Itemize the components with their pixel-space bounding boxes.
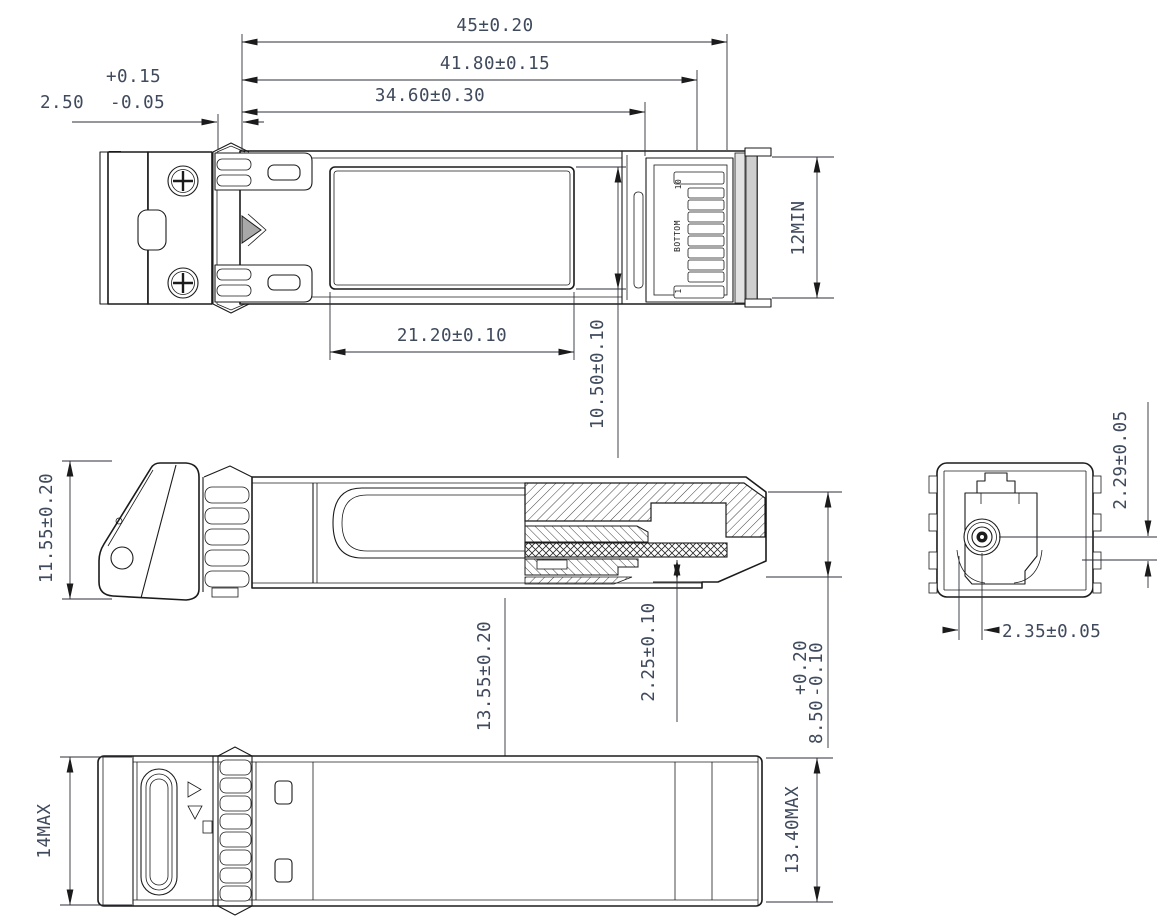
pad <box>688 224 724 234</box>
bail-hole <box>111 547 133 569</box>
latch-slot <box>217 175 251 186</box>
serration-rib <box>205 571 249 587</box>
serration-crown-bottom <box>218 906 252 915</box>
latch-slot <box>217 285 251 296</box>
serration-rib <box>220 886 251 901</box>
dim-text: 2.29±0.05 <box>1111 410 1131 509</box>
dim-text-group: 8.50 +0.20 -0.10 <box>791 640 827 744</box>
small-key-feature <box>203 821 212 833</box>
pad <box>688 272 724 282</box>
rear-tab-top <box>745 148 771 156</box>
serration-rib <box>220 868 251 883</box>
side-rib <box>929 552 937 569</box>
dim-text: 2.25±0.10 <box>639 602 659 701</box>
pcb-section <box>525 543 727 557</box>
housing-cutout <box>268 165 300 180</box>
bottom-body-outline <box>98 756 762 906</box>
serration-rib <box>205 529 249 545</box>
serration-rib <box>205 508 249 524</box>
pad <box>688 200 724 210</box>
dim-text: 21.20±0.10 <box>397 326 507 346</box>
sfp-outline-drawing: 10 BOTTOM 1 45±0.20 41.80±0.15 34.60±0.3… <box>0 0 1162 922</box>
side-rib <box>929 583 937 593</box>
dim-tolerance-plus: +0.15 <box>106 67 161 87</box>
dim-text: 14MAX <box>35 803 55 858</box>
latch-crown-bottom-inner <box>217 304 245 310</box>
side-pocket <box>333 488 525 558</box>
serration-rib <box>220 850 251 865</box>
rear-tab-bottom <box>745 299 771 307</box>
bottom-cutout <box>275 859 292 882</box>
rear-gray-strip <box>746 151 757 304</box>
bottom-view <box>98 747 762 915</box>
dim-text: 8.50 <box>807 700 827 744</box>
dim-latch-band: +0.15 2.50 -0.05 <box>40 67 264 150</box>
dim-text: 2.35±0.05 <box>1002 622 1101 642</box>
serration-rib <box>205 550 249 566</box>
latch-slot <box>217 159 251 170</box>
bail-slot-inner <box>150 779 168 885</box>
dim-text: 13.55±0.20 <box>475 621 495 731</box>
pin-1-label: 1 <box>674 288 683 293</box>
rear-slot <box>634 192 643 288</box>
dim-overall-width-max: 13.40MAX <box>766 758 833 902</box>
serration-rib <box>220 796 251 811</box>
pad <box>688 236 724 246</box>
dim-overall-length: 45±0.20 <box>242 16 727 150</box>
dim-text: 41.80±0.15 <box>440 54 550 74</box>
latch-crown-bottom <box>213 304 249 313</box>
dim-text: 13.40MAX <box>783 786 803 874</box>
serration-rib <box>220 778 251 793</box>
side-rib <box>1093 583 1101 593</box>
bottom-cutout <box>275 781 292 804</box>
dim-tolerance-minus: -0.10 <box>807 642 827 697</box>
fiber-ferrule <box>964 519 1000 555</box>
front-edge-strip <box>100 152 108 304</box>
side-rib <box>1093 476 1101 493</box>
edge-connector: 10 BOTTOM 1 <box>646 158 733 302</box>
housing-cutout <box>268 275 300 290</box>
dim-body-length: 34.60±0.30 <box>242 86 645 156</box>
dim-text: 34.60±0.30 <box>375 86 485 106</box>
serration-rib <box>220 760 251 775</box>
serration-rib <box>220 832 251 847</box>
side-rib <box>929 476 937 493</box>
dim-text: 45±0.20 <box>456 16 533 36</box>
lower-cavity <box>537 560 567 569</box>
bottom-label: BOTTOM <box>673 220 682 252</box>
bail-latch <box>99 463 199 600</box>
dim-tolerance-minus: -0.05 <box>110 93 165 113</box>
dim-text: 11.55±0.20 <box>37 473 57 583</box>
pad <box>688 212 724 222</box>
side-rib <box>1093 552 1101 569</box>
pad <box>688 248 724 258</box>
pad <box>688 260 724 270</box>
fiber-core <box>980 535 984 539</box>
pad <box>688 188 724 198</box>
serration-rib <box>205 487 249 503</box>
side-view <box>99 463 766 600</box>
serration-foot <box>212 588 238 597</box>
serration-rib <box>220 814 251 829</box>
pin-10-label: 10 <box>674 179 683 190</box>
dim-rear-height: 8.50 +0.20 -0.10 <box>766 492 842 748</box>
latch-slot <box>217 269 251 280</box>
serration-crown <box>204 466 252 477</box>
section-hatch-insert <box>525 526 648 542</box>
rear-gray-strip <box>735 153 745 303</box>
dim-text: 10.50±0.10 <box>588 319 608 429</box>
serration-crown-top <box>218 747 252 756</box>
dim-pcb-pad-length: 12MIN <box>772 157 834 298</box>
top-view: 10 BOTTOM 1 <box>100 143 771 313</box>
side-rib <box>1093 514 1101 531</box>
drawing-canvas: 10 BOTTOM 1 45±0.20 41.80±0.15 34.60±0.3… <box>0 0 1162 922</box>
dim-text: 12MIN <box>789 200 809 255</box>
section-hatch-bottom <box>525 577 632 584</box>
dim-text: 2.50 <box>40 93 84 113</box>
side-rib <box>929 514 937 531</box>
label-area <box>330 167 574 289</box>
plate-notch <box>138 210 166 250</box>
